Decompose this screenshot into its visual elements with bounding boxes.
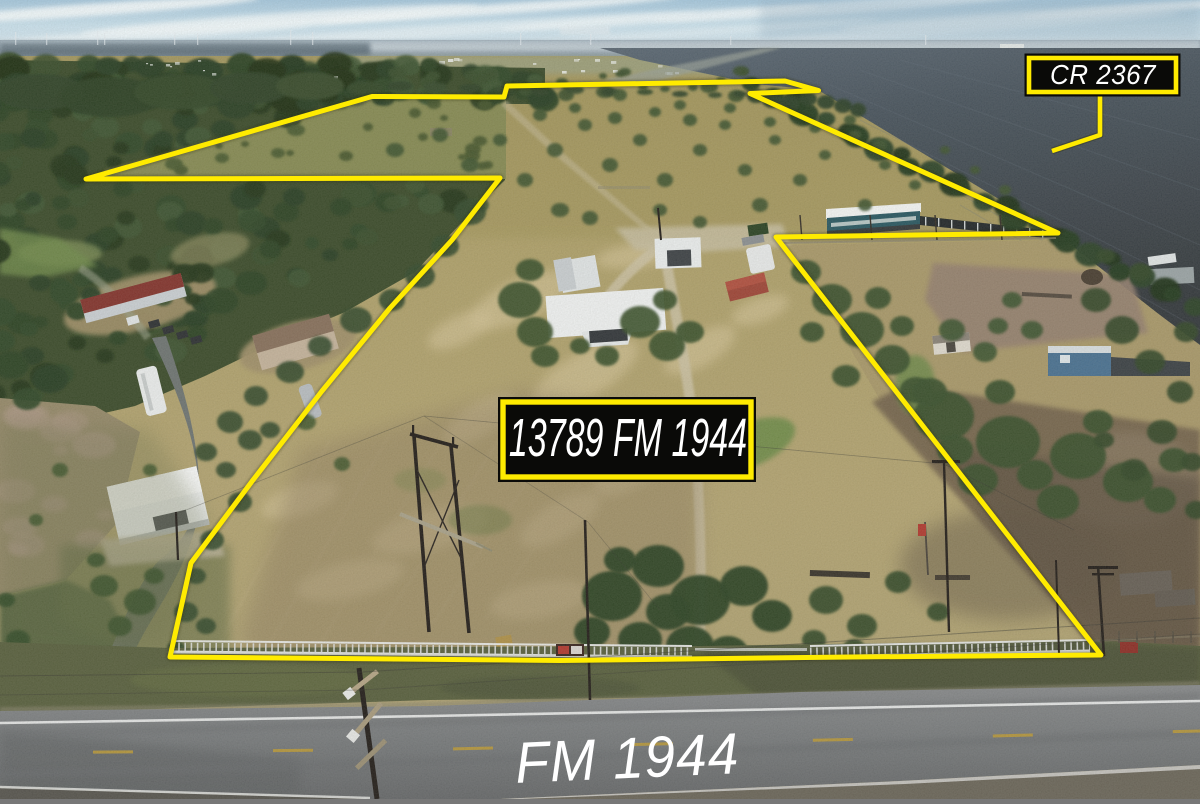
svg-text:CR 2367: CR 2367 — [1050, 59, 1156, 90]
svg-text:FM 1944: FM 1944 — [514, 721, 741, 795]
svg-text:13789 FM 1944: 13789 FM 1944 — [509, 407, 747, 468]
